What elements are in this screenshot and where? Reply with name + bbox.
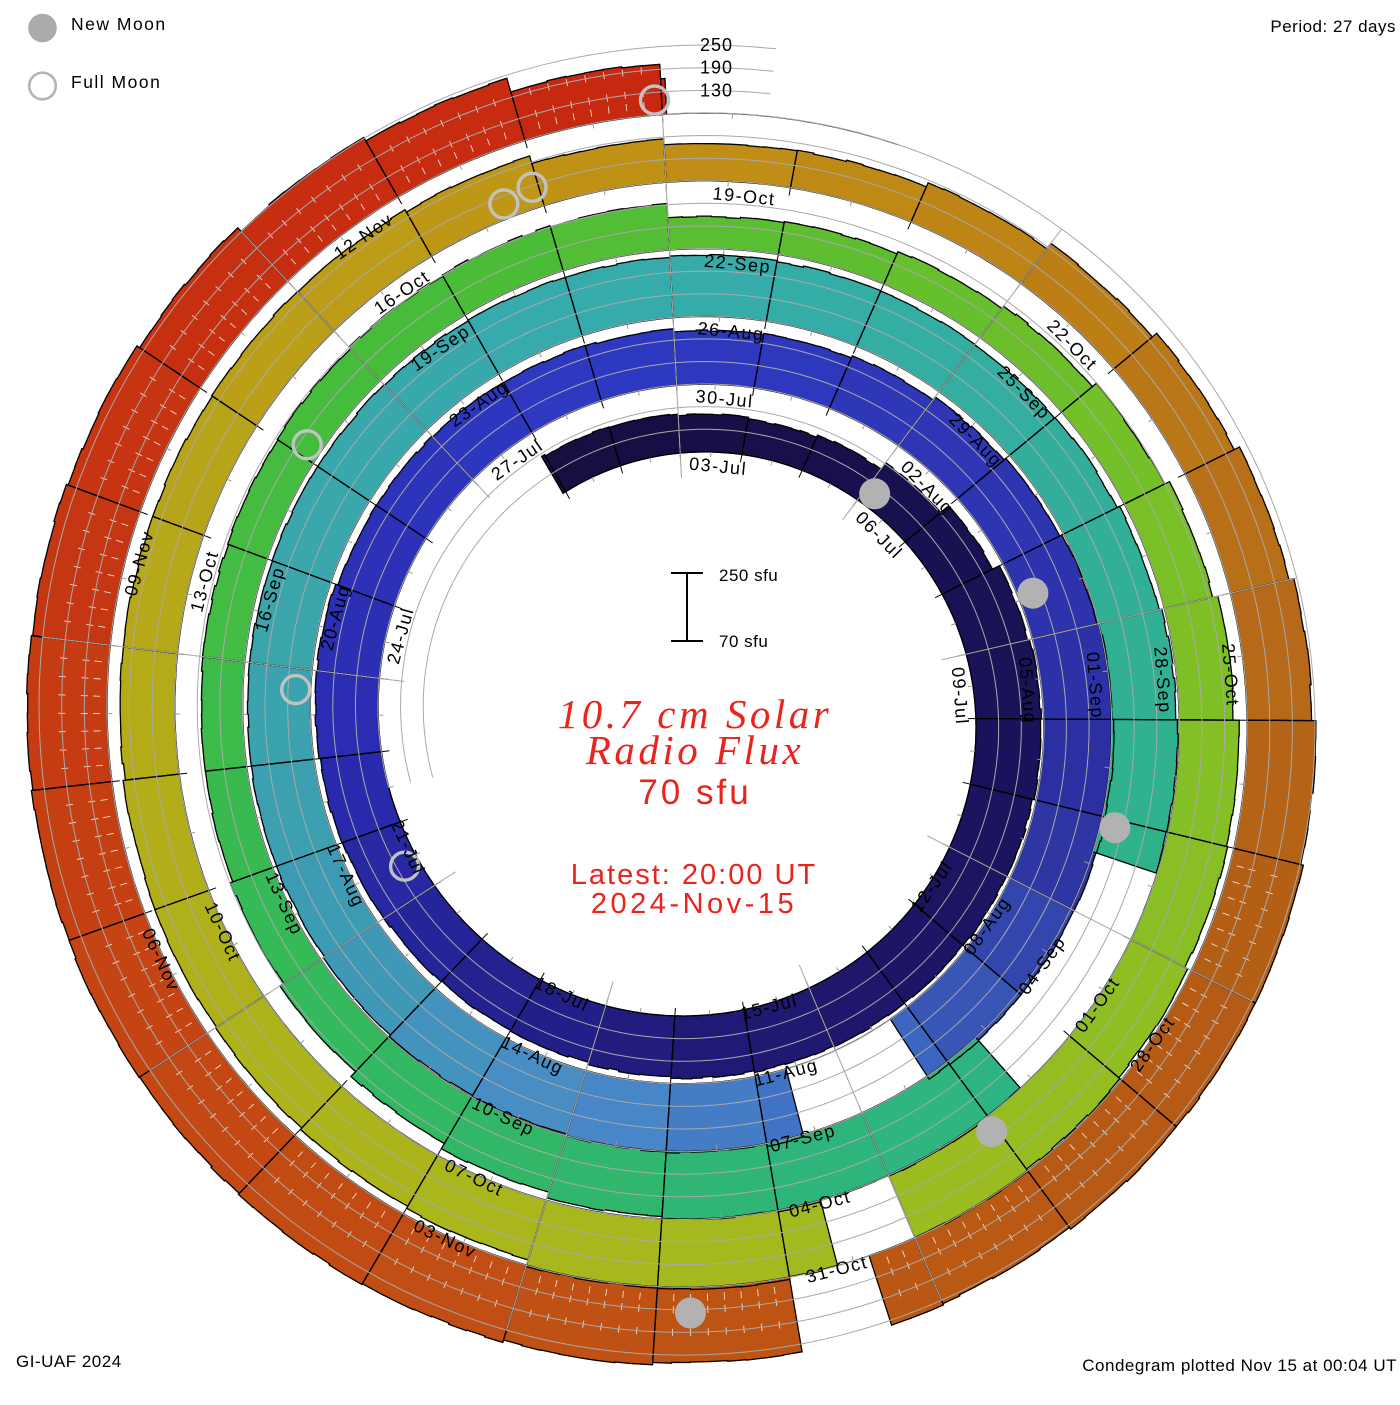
svg-text:Latest: 20:00 UT: Latest: 20:00 UT (571, 859, 817, 891)
svg-text:2024-Nov-15: 2024-Nov-15 (591, 888, 797, 920)
svg-text:GI-UAF 2024: GI-UAF 2024 (16, 1352, 122, 1371)
svg-text:70 sfu: 70 sfu (719, 632, 768, 651)
svg-text:Full Moon: Full Moon (71, 72, 161, 92)
svg-text:Condegram plotted Nov 15 at 00: Condegram plotted Nov 15 at 00:04 UT (1082, 1356, 1397, 1375)
svg-text:130: 130 (700, 80, 733, 100)
svg-text:Period: 27 days: Period: 27 days (1270, 17, 1396, 36)
svg-text:New Moon: New Moon (71, 14, 167, 34)
svg-text:250: 250 (700, 35, 733, 55)
svg-text:Radio Flux: Radio Flux (585, 727, 804, 773)
svg-text:190: 190 (700, 58, 733, 78)
svg-text:250 sfu: 250 sfu (719, 566, 778, 585)
svg-text:70 sfu: 70 sfu (638, 773, 751, 812)
